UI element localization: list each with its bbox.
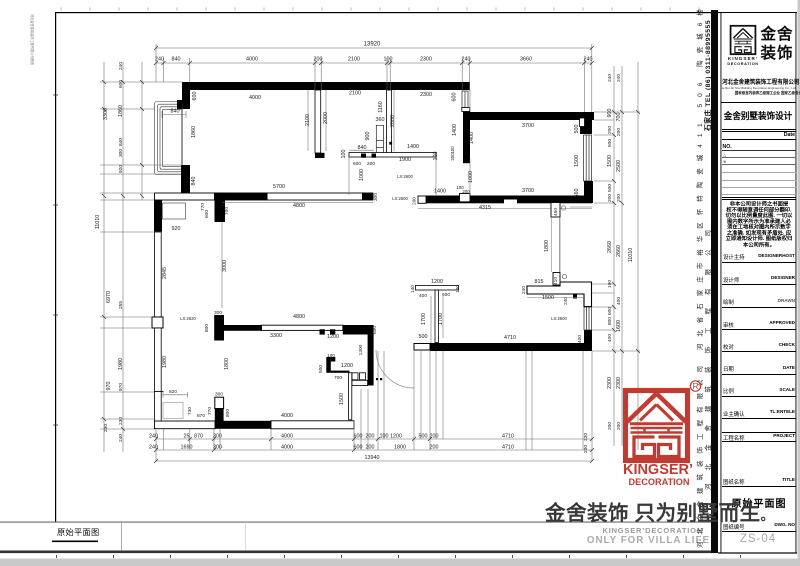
svg-text:300: 300: [215, 392, 223, 398]
svg-text:410: 410: [553, 277, 559, 285]
svg-text:840: 840: [191, 177, 197, 186]
svg-text:2660: 2660: [607, 241, 613, 253]
svg-text:140: 140: [410, 285, 415, 293]
svg-text:300: 300: [213, 445, 222, 451]
svg-text:4000: 4000: [281, 413, 293, 419]
svg-text:140: 140: [455, 285, 460, 293]
svg-text:230: 230: [583, 445, 589, 453]
svg-text:840: 840: [172, 57, 181, 63]
svg-text:500: 500: [574, 125, 580, 134]
svg-text:200: 200: [607, 126, 613, 134]
svg-text:1800: 1800: [544, 240, 550, 252]
svg-text:900: 900: [607, 109, 613, 118]
svg-text:LX:2620: LX:2620: [180, 316, 196, 321]
svg-text:石家庄 TEL (86) 0311-88995555: 石家庄 TEL (86) 0311-88995555: [703, 20, 712, 132]
svg-text:840: 840: [358, 145, 367, 151]
svg-text:200: 200: [607, 422, 613, 430]
svg-text:300: 300: [118, 149, 124, 157]
svg-text:13940: 13940: [365, 455, 380, 461]
svg-text:200: 200: [616, 128, 622, 136]
svg-text:100: 100: [327, 353, 335, 358]
svg-text:100: 100: [607, 280, 613, 288]
svg-text:4000: 4000: [281, 434, 293, 440]
svg-text:230: 230: [118, 417, 124, 425]
svg-text:920: 920: [172, 226, 181, 232]
svg-text:1400: 1400: [434, 189, 446, 195]
svg-text:300: 300: [213, 434, 222, 440]
svg-text:4000: 4000: [246, 57, 258, 63]
svg-text:1700: 1700: [438, 313, 444, 325]
svg-text:700: 700: [224, 207, 230, 215]
svg-text:河北金舍建筑装饰工程有限公司 河北省石家庄市裕华区怀特陶瓷城: 河北金舍建筑装饰工程有限公司 河北省石家庄市裕华区怀特陶瓷城411 506 陶瓷…: [695, 2, 704, 548]
svg-text:200: 200: [412, 197, 417, 205]
svg-text:1800: 1800: [224, 358, 230, 370]
svg-text:2000: 2000: [323, 112, 329, 124]
svg-text:600: 600: [607, 307, 613, 315]
svg-text:600: 600: [442, 292, 450, 298]
svg-text:1600: 1600: [616, 320, 622, 332]
svg-text:1200: 1200: [327, 334, 339, 340]
svg-text:2300: 2300: [420, 92, 432, 98]
svg-text:200: 200: [366, 434, 375, 440]
svg-text:900: 900: [365, 132, 371, 141]
svg-text:600: 600: [372, 326, 378, 334]
svg-text:11010: 11010: [628, 248, 634, 263]
svg-text:100: 100: [433, 152, 439, 161]
svg-text:200: 200: [366, 445, 375, 451]
svg-text:2100: 2100: [305, 114, 311, 126]
svg-text:3300: 3300: [103, 108, 109, 120]
svg-text:1160: 1160: [378, 101, 384, 113]
svg-text:3700: 3700: [522, 188, 534, 194]
svg-text:1980: 1980: [162, 356, 168, 368]
svg-text:1400: 1400: [469, 132, 475, 144]
svg-text:800: 800: [225, 409, 231, 417]
svg-text:970: 970: [106, 382, 112, 391]
svg-text:770: 770: [200, 203, 206, 211]
svg-text:240: 240: [155, 57, 164, 63]
svg-text:LX:2600: LX:2600: [397, 174, 413, 179]
svg-text:2100: 2100: [349, 91, 361, 97]
svg-text:200: 200: [430, 445, 439, 451]
svg-text:500: 500: [318, 365, 324, 373]
svg-text:2300: 2300: [607, 377, 613, 389]
svg-text:200: 200: [450, 153, 455, 161]
svg-text:LX:2600: LX:2600: [551, 316, 567, 321]
svg-text:240: 240: [607, 74, 613, 82]
svg-text:13920: 13920: [364, 42, 381, 48]
svg-text:2100: 2100: [348, 57, 360, 63]
svg-text:920: 920: [118, 165, 124, 173]
svg-text:360: 360: [376, 117, 385, 123]
svg-text:1400: 1400: [407, 144, 419, 150]
svg-text:DECORATION: DECORATION: [629, 477, 690, 487]
svg-text:1690: 1690: [181, 445, 193, 451]
svg-text:100: 100: [450, 146, 455, 154]
svg-text:1500: 1500: [574, 155, 580, 167]
svg-text:730: 730: [187, 407, 193, 415]
svg-text:870: 870: [194, 434, 203, 440]
svg-text:870: 870: [197, 413, 205, 419]
svg-text:1200: 1200: [390, 434, 402, 440]
svg-text:200: 200: [430, 434, 439, 440]
svg-text:4800: 4800: [293, 203, 305, 209]
svg-text:1200: 1200: [431, 279, 443, 285]
svg-text:300: 300: [214, 310, 222, 316]
svg-text:770: 770: [207, 407, 213, 415]
svg-text:600: 600: [354, 445, 363, 451]
svg-text:815: 815: [535, 279, 544, 285]
svg-text:230: 230: [103, 424, 109, 432]
svg-text:3700: 3700: [522, 123, 534, 129]
svg-text:700: 700: [616, 113, 622, 122]
svg-text:1900: 1900: [399, 157, 411, 163]
svg-text:4710: 4710: [502, 445, 514, 451]
svg-text:6970: 6970: [106, 291, 112, 303]
svg-text:240: 240: [149, 445, 158, 451]
svg-text:600: 600: [452, 93, 458, 102]
svg-text:1400: 1400: [452, 124, 458, 136]
svg-text:100: 100: [384, 57, 393, 63]
svg-text:400: 400: [616, 297, 622, 305]
svg-text:KINGSER’: KINGSER’: [623, 461, 693, 478]
svg-text:240: 240: [149, 434, 158, 440]
svg-text:240: 240: [563, 297, 568, 305]
svg-text:2000: 2000: [390, 115, 396, 127]
svg-text:1000: 1000: [359, 169, 365, 181]
svg-text:2500: 2500: [616, 160, 622, 172]
svg-text:230: 230: [583, 433, 589, 441]
svg-text:300: 300: [373, 193, 379, 201]
svg-text:200: 200: [607, 194, 613, 202]
svg-text:800: 800: [204, 324, 210, 332]
svg-text:1980: 1980: [118, 358, 124, 370]
svg-text:3300: 3300: [270, 333, 282, 339]
svg-text:1800: 1800: [394, 445, 406, 451]
svg-text:1500: 1500: [607, 155, 613, 167]
svg-text:240: 240: [616, 74, 622, 82]
svg-text:450: 450: [553, 208, 559, 216]
svg-text:4000: 4000: [249, 95, 261, 101]
svg-text:1700: 1700: [421, 313, 427, 325]
svg-text:4800: 4800: [293, 314, 305, 320]
svg-text:200: 200: [616, 194, 622, 202]
svg-text:11010: 11010: [95, 215, 101, 230]
svg-text:800: 800: [607, 317, 613, 325]
svg-text:600: 600: [118, 80, 124, 88]
svg-text:100: 100: [380, 434, 389, 440]
svg-text:200: 200: [367, 161, 375, 167]
svg-text:4710: 4710: [502, 434, 514, 440]
svg-text:500: 500: [419, 434, 428, 440]
svg-text:1860: 1860: [118, 105, 124, 117]
svg-text:4000: 4000: [281, 445, 293, 451]
svg-text:1500: 1500: [339, 393, 345, 405]
svg-text:240: 240: [521, 286, 527, 294]
svg-text:1000: 1000: [468, 171, 474, 183]
svg-text:200: 200: [314, 57, 323, 63]
svg-text:原始平面图: 原始平面图: [57, 527, 99, 537]
svg-text:600: 600: [204, 210, 210, 218]
svg-text:河北金舍建筑装饰工程有限公司图纸: 河北金舍建筑装饰工程有限公司图纸: [30, 14, 35, 66]
svg-text:3000: 3000: [222, 260, 228, 272]
svg-text:1300: 1300: [358, 344, 364, 355]
svg-text:400: 400: [419, 293, 427, 299]
svg-text:255: 255: [118, 301, 124, 309]
svg-text:970: 970: [118, 383, 124, 391]
svg-text:1860: 1860: [191, 126, 197, 138]
svg-text:560: 560: [574, 189, 580, 198]
svg-text:4315: 4315: [479, 205, 491, 211]
svg-text:200: 200: [462, 189, 470, 194]
svg-text:1200: 1200: [341, 363, 353, 369]
svg-text:400: 400: [577, 335, 583, 343]
svg-text:5700: 5700: [273, 184, 285, 190]
svg-text:240: 240: [462, 57, 471, 63]
svg-text:840: 840: [171, 109, 180, 115]
svg-text:240: 240: [584, 57, 593, 63]
svg-text:25: 25: [184, 434, 190, 440]
svg-text:LX:2600: LX:2600: [392, 196, 408, 201]
svg-text:400: 400: [607, 334, 613, 342]
svg-text:240: 240: [118, 434, 124, 442]
svg-text:500: 500: [607, 139, 613, 147]
svg-text:820: 820: [169, 389, 177, 395]
svg-text:100: 100: [341, 150, 347, 159]
svg-text:1500: 1500: [542, 295, 554, 301]
svg-text:3660: 3660: [520, 57, 532, 63]
svg-text:2300: 2300: [420, 57, 432, 63]
svg-text:2845: 2845: [162, 267, 168, 279]
svg-text:4710: 4710: [504, 335, 516, 341]
svg-text:600: 600: [192, 92, 198, 101]
svg-text:500: 500: [419, 334, 428, 340]
svg-text:河北金舍建筑装饰工程有限公司: 河北金舍建筑装饰工程有限公司: [703, 217, 712, 490]
svg-text:240: 240: [118, 62, 124, 70]
svg-text:500: 500: [607, 184, 613, 192]
svg-text:700: 700: [334, 375, 342, 381]
svg-text:600: 600: [353, 161, 361, 167]
svg-text:840: 840: [118, 138, 124, 146]
svg-text:2660: 2660: [616, 245, 622, 257]
svg-text:600: 600: [354, 434, 363, 440]
